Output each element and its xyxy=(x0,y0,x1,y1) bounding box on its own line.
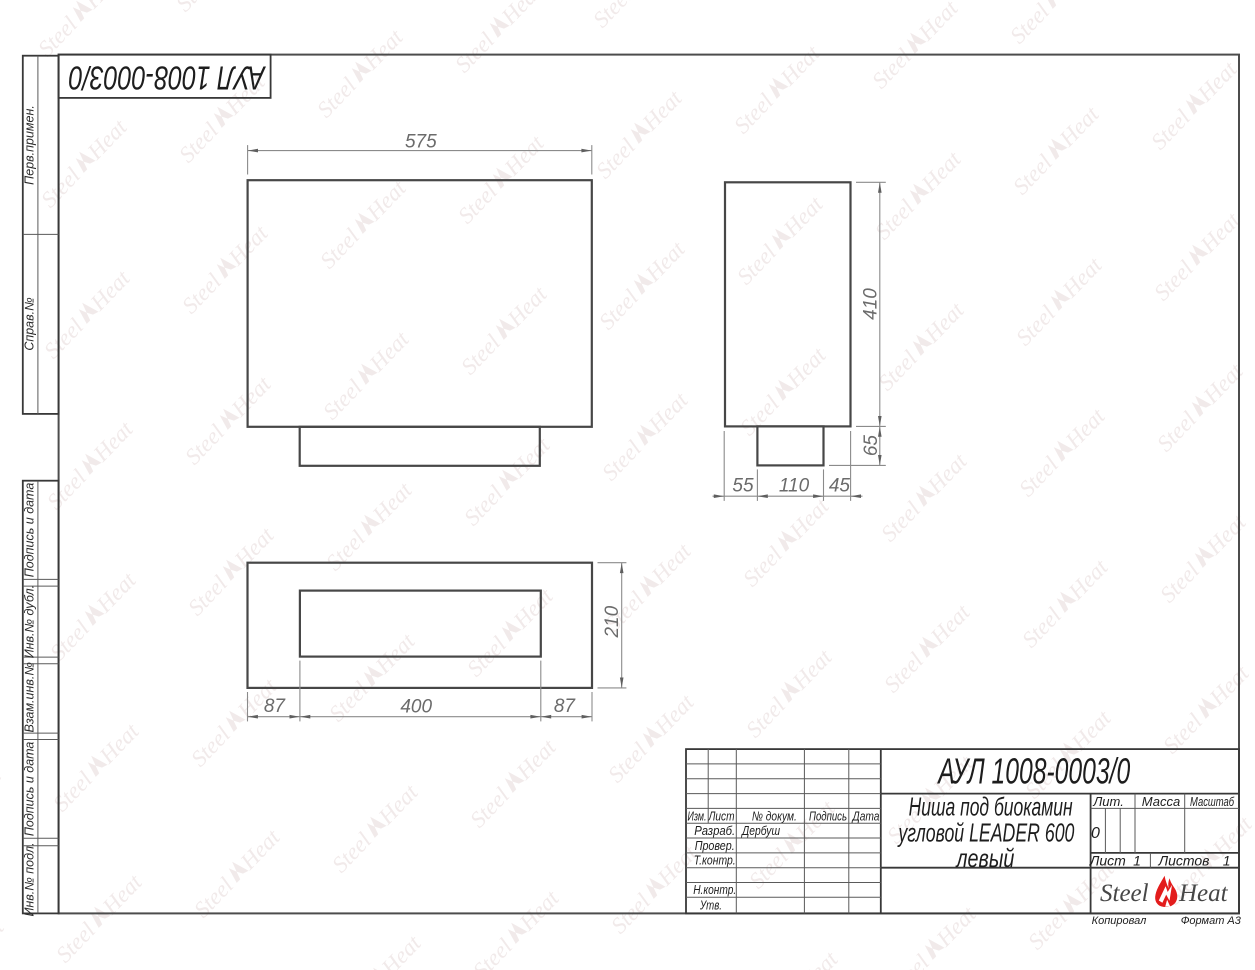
svg-text:410: 410 xyxy=(861,288,882,320)
svg-text:Н.контр.: Н.контр. xyxy=(693,882,736,897)
svg-text:Steel: Steel xyxy=(1100,880,1149,907)
svg-text:АУЛ 1008-0003/0: АУЛ 1008-0003/0 xyxy=(937,751,1130,792)
svg-text:Лит.: Лит. xyxy=(1092,794,1123,809)
svg-text:Подпись и дата: Подпись и дата xyxy=(23,483,37,578)
svg-text:Формат А3: Формат А3 xyxy=(1181,915,1242,927)
svg-text:Утв.: Утв. xyxy=(699,898,722,913)
svg-text:Дата: Дата xyxy=(851,809,880,824)
svg-text:1: 1 xyxy=(1133,853,1141,869)
svg-text:АУЛ 1008-0003/0: АУЛ 1008-0003/0 xyxy=(68,60,266,97)
svg-text:575: 575 xyxy=(405,132,437,153)
svg-text:210: 210 xyxy=(602,605,623,638)
svg-text:левый: левый xyxy=(955,843,1015,873)
svg-text:Подпись и дата: Подпись и дата xyxy=(23,742,37,837)
svg-text:1: 1 xyxy=(1223,853,1231,869)
svg-text:Инв.№ подл.: Инв.№ подл. xyxy=(23,842,37,916)
svg-text:Разраб.: Разраб. xyxy=(694,823,735,838)
svg-text:Инв.№ дубл.: Инв.№ дубл. xyxy=(23,585,37,658)
svg-text:87: 87 xyxy=(554,696,577,717)
svg-text:0: 0 xyxy=(1091,825,1100,842)
svg-text:Т.контр.: Т.контр. xyxy=(694,853,736,868)
svg-text:Провер.: Провер. xyxy=(695,838,735,853)
svg-text:Изм.: Изм. xyxy=(688,809,707,824)
svg-text:№ докум.: № докум. xyxy=(752,809,797,824)
svg-text:Масштаб: Масштаб xyxy=(1190,794,1234,809)
svg-text:Перв.примен.: Перв.примен. xyxy=(23,105,37,185)
svg-text:55: 55 xyxy=(732,476,754,497)
svg-text:65: 65 xyxy=(861,435,882,457)
svg-text:Взам.инв.№: Взам.инв.№ xyxy=(23,662,37,733)
svg-text:110: 110 xyxy=(779,476,810,497)
svg-text:Справ.№: Справ.№ xyxy=(23,297,37,351)
svg-text:Лист: Лист xyxy=(1089,853,1126,869)
svg-text:Дербуш: Дербуш xyxy=(740,823,780,838)
svg-text:87: 87 xyxy=(264,696,287,717)
svg-text:Копировал: Копировал xyxy=(1092,915,1147,927)
svg-text:400: 400 xyxy=(400,697,432,718)
svg-text:Подпись: Подпись xyxy=(809,809,847,824)
svg-text:45: 45 xyxy=(829,476,851,497)
svg-text:Масса: Масса xyxy=(1142,794,1180,809)
svg-text:Листов: Листов xyxy=(1158,853,1210,869)
svg-text:Heat: Heat xyxy=(1178,880,1229,907)
svg-text:Лист: Лист xyxy=(708,809,735,824)
